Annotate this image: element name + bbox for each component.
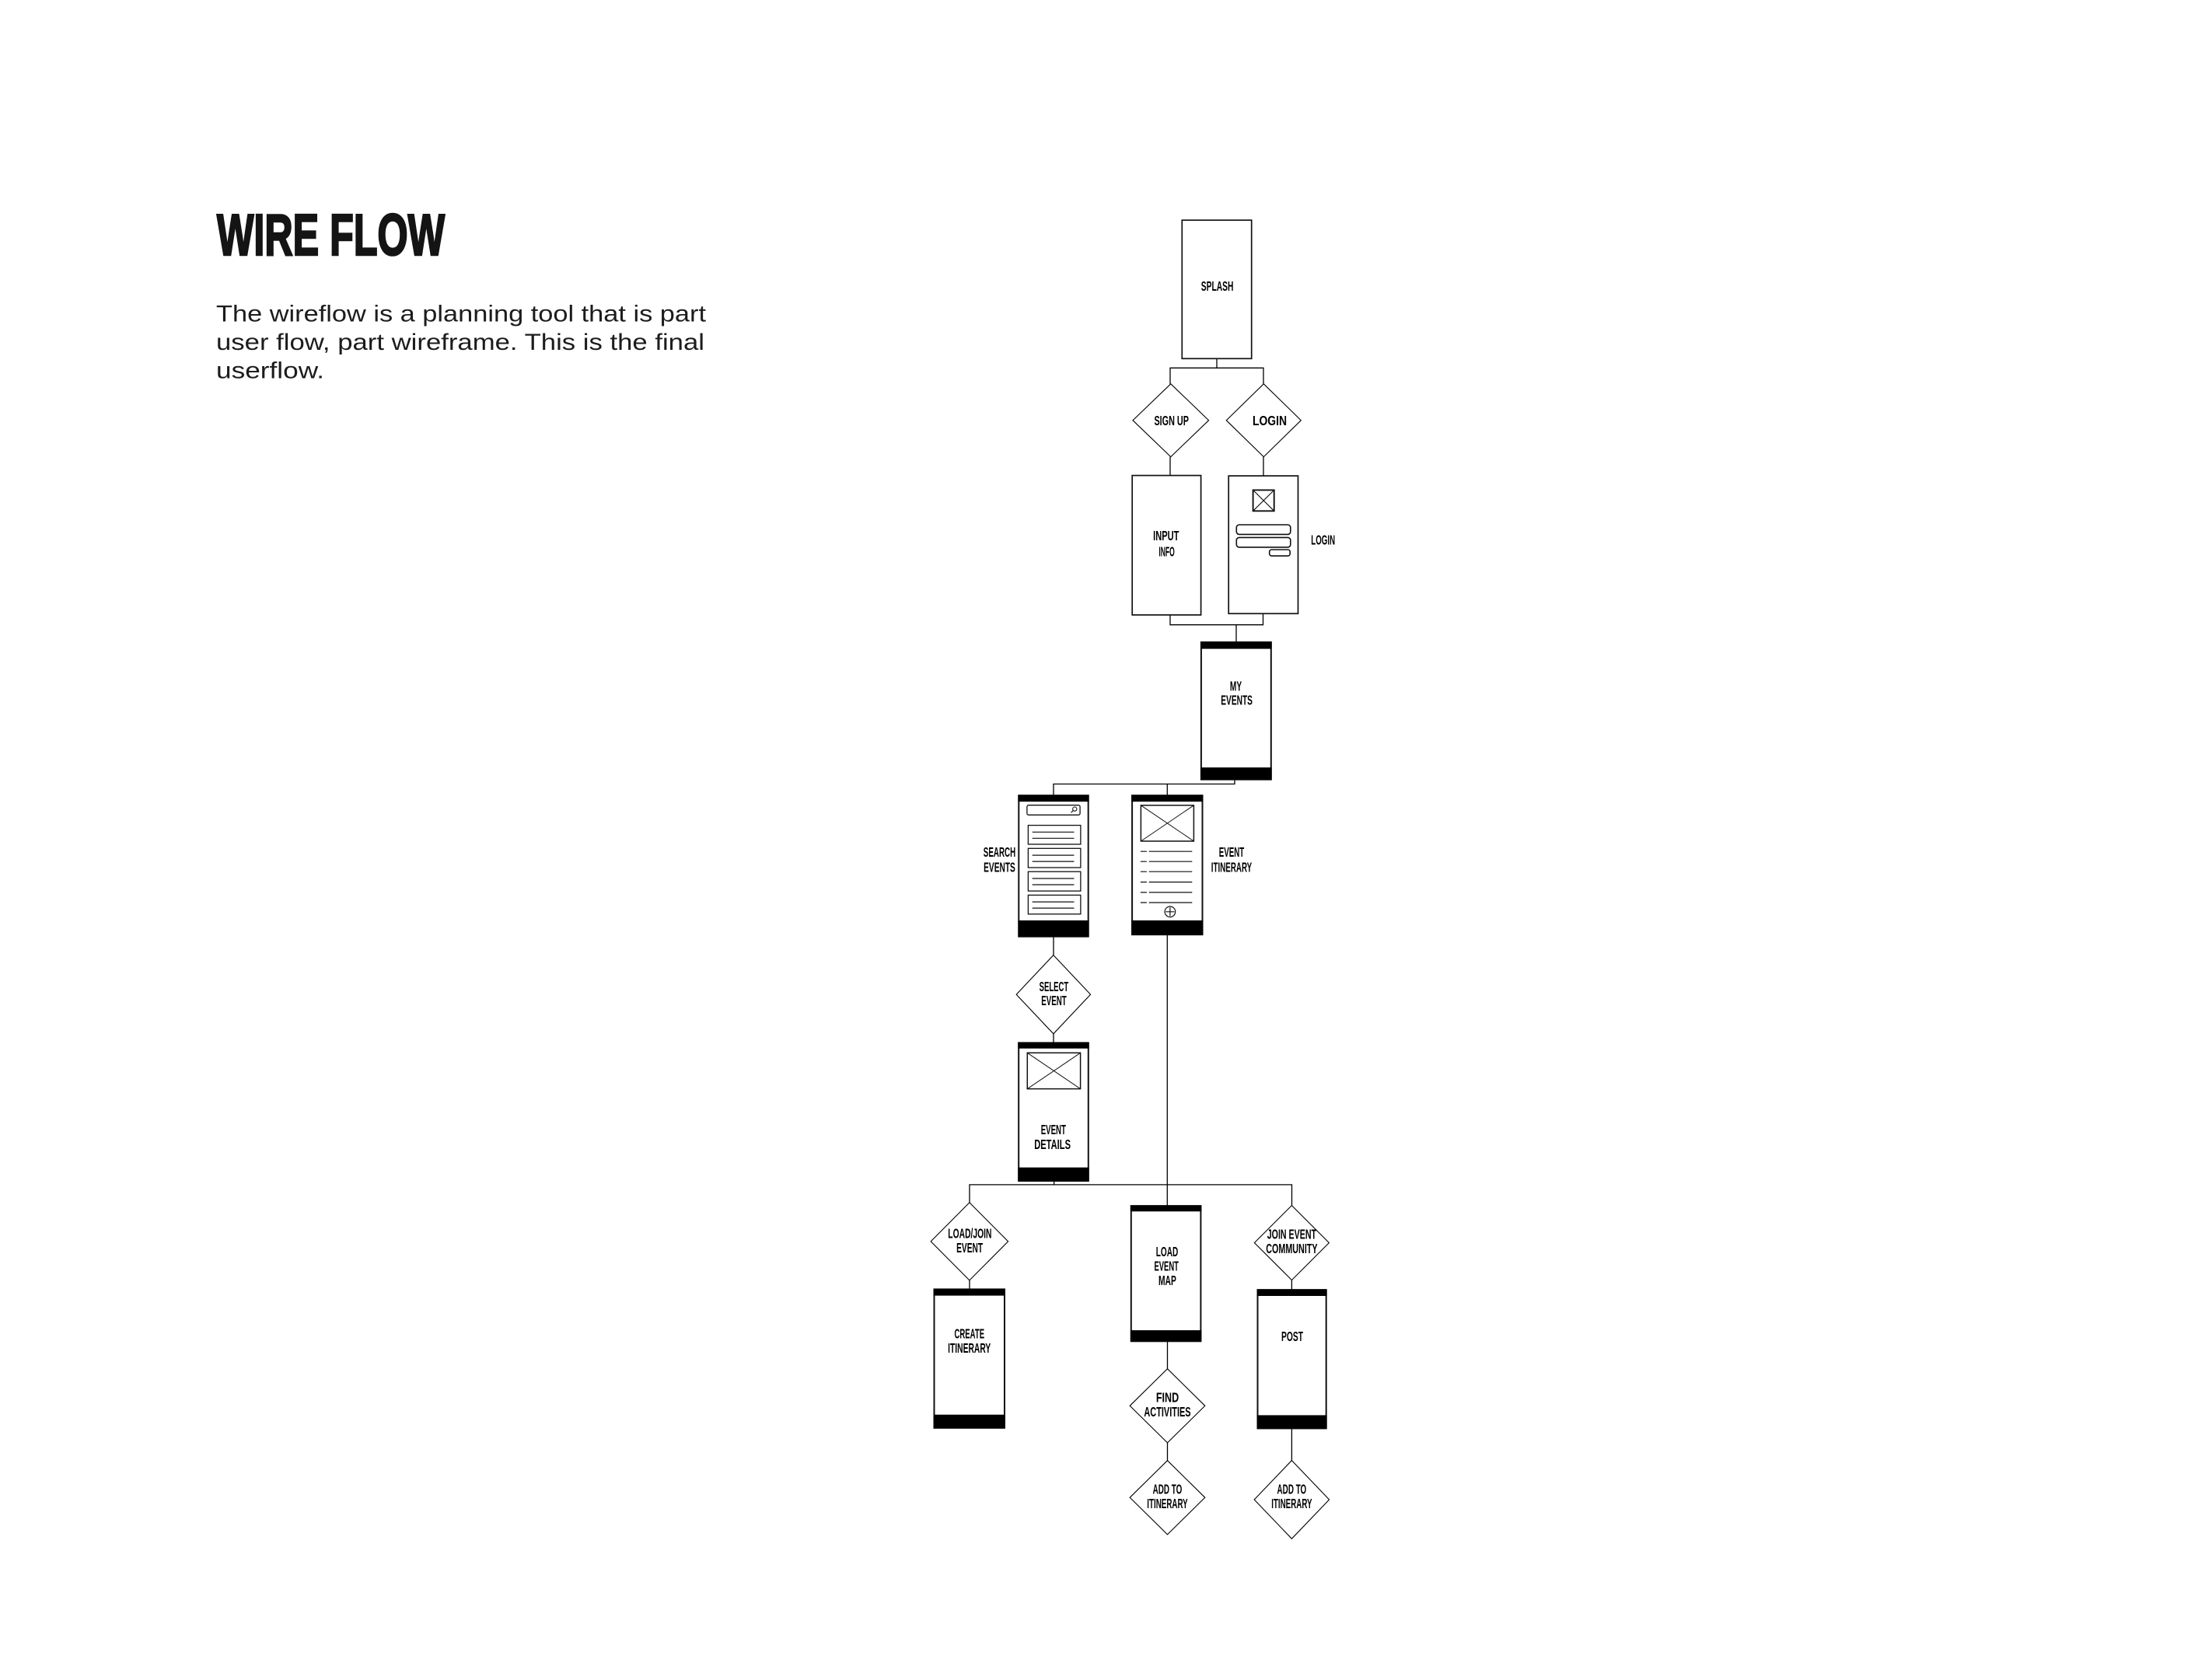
svg-text:DETAILS: DETAILS — [1034, 1137, 1071, 1152]
svg-text:CREATE: CREATE — [955, 1326, 985, 1342]
svg-text:ADD TO: ADD TO — [1153, 1481, 1183, 1497]
svg-text:SIGN UP: SIGN UP — [1154, 413, 1189, 428]
svg-text:SEARCH: SEARCH — [984, 844, 1015, 860]
svg-text:ITINERARY: ITINERARY — [1271, 1496, 1312, 1511]
svg-text:ACTIVITIES: ACTIVITIES — [1144, 1404, 1190, 1420]
svg-text:COMMUNITY: COMMUNITY — [1266, 1241, 1318, 1256]
svg-text:userflow.: userflow. — [216, 358, 324, 384]
svg-text:EVENTS: EVENTS — [984, 860, 1015, 875]
svg-text:LOGIN: LOGIN — [1311, 533, 1335, 548]
svg-text:ITINERARY: ITINERARY — [948, 1340, 991, 1356]
svg-text:ADD TO: ADD TO — [1277, 1481, 1307, 1497]
svg-text:INPUT: INPUT — [1153, 528, 1179, 543]
svg-text:LOAD/JOIN: LOAD/JOIN — [948, 1225, 991, 1241]
svg-text:EVENT: EVENT — [1041, 993, 1067, 1008]
svg-text:EVENT: EVENT — [956, 1240, 983, 1256]
svg-text:JOIN EVENT: JOIN EVENT — [1267, 1227, 1317, 1242]
svg-text:FIND: FIND — [1156, 1389, 1179, 1405]
svg-text:user flow, part wireframe. Thi: user flow, part wireframe. This is the f… — [216, 330, 704, 355]
svg-text:POST: POST — [1281, 1329, 1303, 1344]
svg-text:EVENT: EVENT — [1219, 844, 1245, 860]
svg-text:MAP: MAP — [1158, 1273, 1176, 1288]
svg-text:MY: MY — [1230, 679, 1242, 694]
svg-text:LOAD: LOAD — [1156, 1244, 1179, 1259]
svg-text:EVENT: EVENT — [1041, 1122, 1066, 1137]
svg-text:LOGIN: LOGIN — [1253, 413, 1287, 428]
svg-text:EVENT: EVENT — [1154, 1258, 1179, 1273]
svg-text:INFO: INFO — [1158, 544, 1175, 560]
svg-text:ITINERARY: ITINERARY — [1211, 860, 1253, 875]
svg-text:SELECT: SELECT — [1040, 979, 1069, 994]
svg-text:ITINERARY: ITINERARY — [1147, 1496, 1188, 1511]
svg-text:The wireflow is a planning too: The wireflow is a planning tool that is … — [216, 302, 707, 327]
svg-text:EVENTS: EVENTS — [1221, 693, 1253, 708]
svg-text:SPLASH: SPLASH — [1201, 278, 1234, 294]
svg-text:WIRE FLOW: WIRE FLOW — [217, 202, 445, 267]
